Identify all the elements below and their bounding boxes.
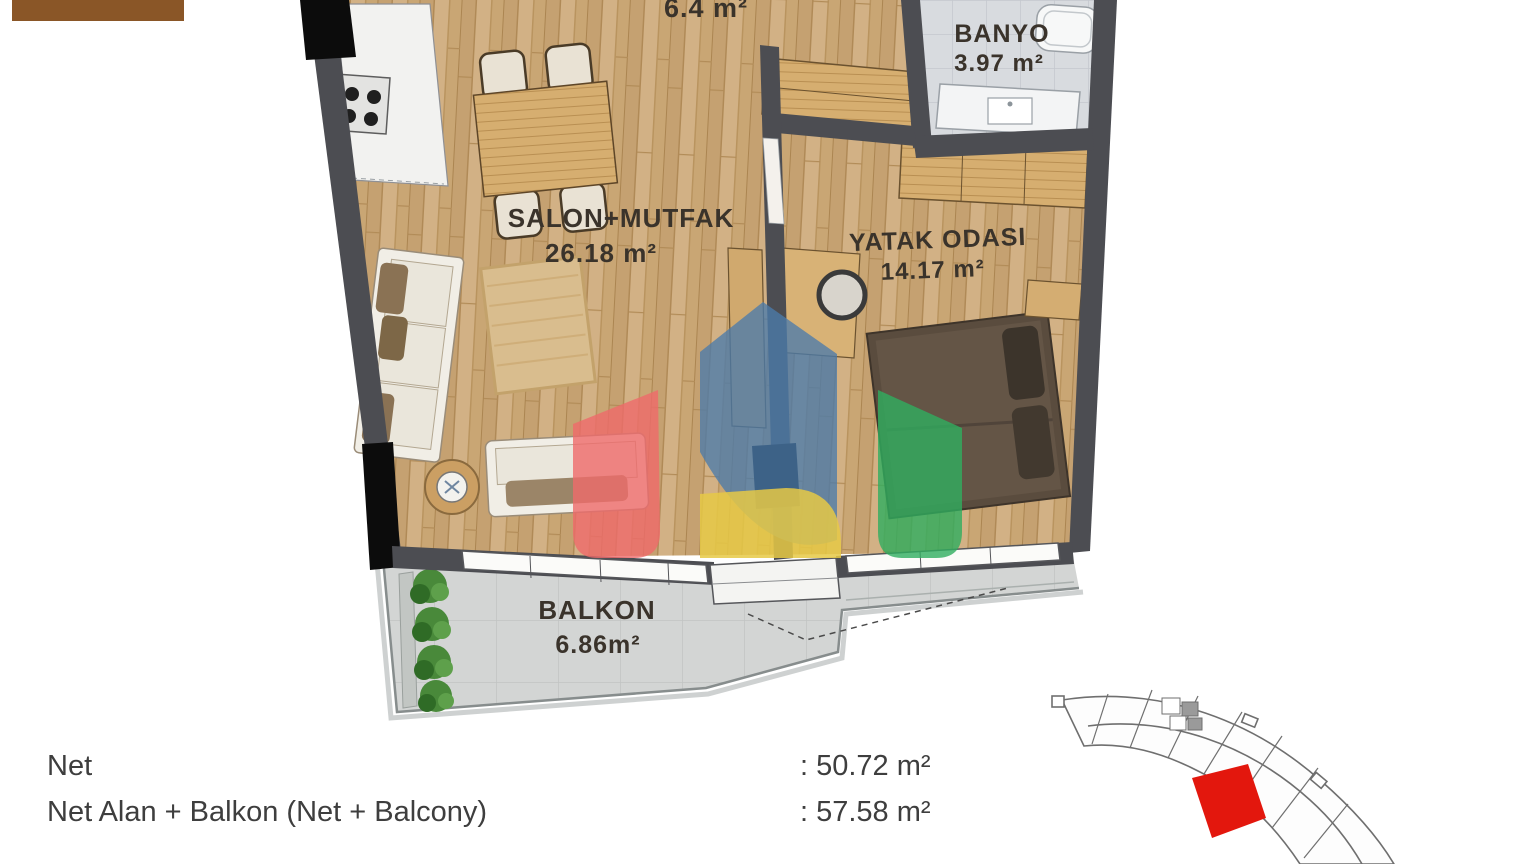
nightstand [1025,280,1082,320]
salon-area-label: 26.18 m² [545,238,657,268]
key-plan [1052,690,1394,864]
dining-table [473,81,617,196]
key-plan-tick [1242,714,1258,728]
floor-plan-svg: 6.4 m² BANYO 3.97 m² SALON+MUTFAK 26.18 … [0,0,1536,864]
salon-name-label: SALON+MUTFAK [508,203,735,233]
coffee-table [425,460,479,514]
banyo-area-label: 3.97 m² [954,50,1044,77]
summary-net-value: : 50.72 m² [800,750,931,783]
desk-chair [819,272,865,318]
wall-left-black-top [300,0,356,60]
page: 6.4 m² BANYO 3.97 m² SALON+MUTFAK 26.18 … [0,0,1536,864]
logo-yellow-shape [700,488,841,558]
summary-row-net-balcony: Net Alan + Balkon (Net + Balcony) : 57.5… [47,796,487,829]
balcony-name-label: BALKON [538,595,655,625]
bedroom-area-label: 14.17 m² [880,255,985,286]
summary-net-label: Net [47,750,92,782]
key-plan-cap [1052,696,1064,707]
sofa-pillow [377,315,408,362]
hall-area-label: 6.4 m² [664,0,748,23]
summary-row-net: Net : 50.72 m² [47,750,92,783]
rug [481,257,596,394]
summary-net-balcony-label: Net Alan + Balkon (Net + Balcony) [47,796,487,828]
balcony-area-label: 6.86m² [555,631,640,659]
bathroom-vanity [936,84,1080,136]
summary-net-balcony-value: : 57.58 m² [800,796,931,829]
banyo-name-label: BANYO [954,20,1049,48]
